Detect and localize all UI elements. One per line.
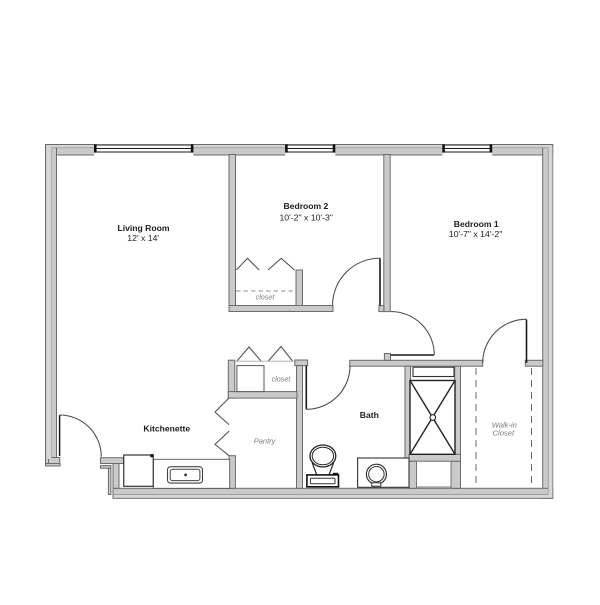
svg-text:Pantry: Pantry [254, 436, 277, 445]
svg-text:Bath: Bath [360, 410, 379, 420]
svg-text:Bedroom 1: Bedroom 1 [454, 219, 499, 229]
svg-text:Bedroom 2: Bedroom 2 [283, 201, 328, 211]
svg-text:12' x 14': 12' x 14' [127, 233, 159, 243]
svg-text:10'-7" x 14'-2": 10'-7" x 14'-2" [449, 229, 502, 239]
svg-text:Kitchenette: Kitchenette [143, 423, 190, 433]
svg-text:closet: closet [256, 293, 276, 302]
svg-text:closet: closet [272, 374, 292, 383]
svg-text:10'-2" x 10'-3": 10'-2" x 10'-3" [279, 213, 332, 223]
svg-text:Living Room: Living Room [117, 223, 169, 233]
svg-text:Closet: Closet [493, 429, 515, 438]
